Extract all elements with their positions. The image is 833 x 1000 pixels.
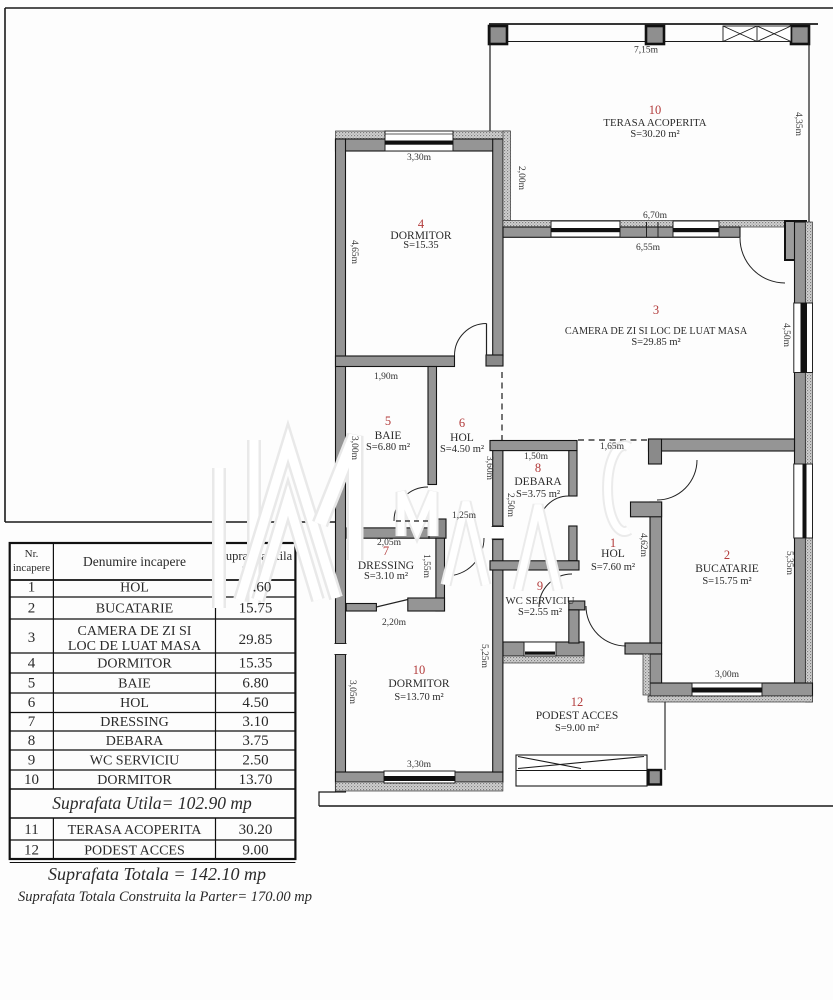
svg-text:Suprafata Totala Construita la: Suprafata Totala Construita la Parter= 1…	[18, 889, 312, 905]
svg-text:PODEST ACCES: PODEST ACCES	[536, 710, 619, 722]
svg-text:11: 11	[24, 822, 38, 838]
svg-text:5: 5	[28, 676, 36, 692]
svg-text:3: 3	[653, 303, 659, 317]
svg-text:S=9.00 m²: S=9.00 m²	[555, 723, 599, 734]
svg-text:incapere: incapere	[13, 562, 50, 574]
svg-text:S=2.55 m²: S=2.55 m²	[518, 607, 562, 618]
svg-text:S=3.75 m²: S=3.75 m²	[516, 489, 560, 500]
svg-text:Denumire incapere: Denumire incapere	[83, 554, 186, 569]
svg-text:10: 10	[413, 663, 426, 677]
svg-text:4: 4	[418, 217, 425, 231]
svg-text:1,90m: 1,90m	[374, 372, 399, 382]
svg-text:4,62m: 4,62m	[638, 533, 648, 558]
svg-text:1,65m: 1,65m	[600, 442, 625, 452]
svg-text:10: 10	[24, 772, 39, 788]
svg-text:BUCATARIE: BUCATARIE	[96, 602, 173, 617]
svg-text:BAIE: BAIE	[118, 677, 151, 692]
svg-text:S=7.60 m²: S=7.60 m²	[591, 562, 635, 573]
svg-text:.60: .60	[253, 580, 272, 596]
svg-text:7,15m: 7,15m	[634, 46, 659, 56]
svg-text:9.00: 9.00	[242, 843, 268, 859]
svg-text:2: 2	[28, 601, 36, 617]
svg-text:3,30m: 3,30m	[407, 760, 432, 770]
svg-text:7: 7	[28, 714, 36, 730]
svg-text:2,00m: 2,00m	[516, 166, 526, 191]
svg-text:S=6.80 m²: S=6.80 m²	[366, 442, 410, 453]
svg-text:S=3.10 m²: S=3.10 m²	[364, 571, 408, 582]
svg-text:S=30.20 m²: S=30.20 m²	[630, 129, 679, 140]
svg-text:WC SERVICIU: WC SERVICIU	[505, 595, 574, 607]
svg-text:6.80: 6.80	[242, 676, 268, 692]
svg-text:S=29.85 m²: S=29.85 m²	[631, 337, 680, 348]
svg-text:TERASA ACOPERITA: TERASA ACOPERITA	[603, 117, 706, 129]
svg-text:PODEST ACCES: PODEST ACCES	[84, 844, 185, 859]
svg-text:3,00m: 3,00m	[349, 436, 359, 461]
svg-text:5,35m: 5,35m	[784, 551, 794, 576]
svg-text:HOL: HOL	[601, 548, 625, 560]
svg-text:6,70m: 6,70m	[643, 211, 668, 221]
svg-text:6: 6	[459, 416, 465, 430]
svg-text:DORMITOR: DORMITOR	[97, 773, 172, 788]
svg-text:1,50m: 1,50m	[524, 452, 549, 462]
svg-text:4,35m: 4,35m	[793, 112, 803, 137]
svg-text:3: 3	[28, 630, 36, 646]
svg-text:5,25m: 5,25m	[479, 644, 489, 669]
svg-text:CAMERA DE ZI SI LOC DE LUAT MA: CAMERA DE ZI SI LOC DE LUAT MASA	[565, 326, 748, 337]
svg-text:DEBARA: DEBARA	[514, 476, 562, 488]
svg-text:BAIE: BAIE	[375, 430, 402, 442]
svg-text:8: 8	[535, 461, 541, 475]
svg-text:S=4.50 m²: S=4.50 m²	[440, 444, 484, 455]
svg-text:2,20m: 2,20m	[382, 618, 407, 628]
svg-text:S=15.35: S=15.35	[403, 240, 438, 251]
svg-text:2: 2	[724, 548, 730, 562]
svg-text:CAMERA DE ZI SI: CAMERA DE ZI SI	[78, 624, 192, 639]
svg-text:3.10: 3.10	[242, 714, 268, 730]
svg-text:13.70: 13.70	[239, 772, 273, 788]
svg-text:S=13.70 m²: S=13.70 m²	[394, 692, 443, 703]
svg-text:9: 9	[537, 579, 543, 593]
svg-text:2,50m: 2,50m	[505, 493, 515, 518]
svg-text:Nr.: Nr.	[25, 548, 39, 560]
svg-text:Suprafata Totala = 142.10 mp: Suprafata Totala = 142.10 mp	[48, 864, 266, 884]
svg-text:1,25m: 1,25m	[452, 511, 477, 521]
svg-text:10: 10	[649, 103, 662, 117]
svg-text:4,50m: 4,50m	[781, 323, 791, 348]
svg-text:2.50: 2.50	[242, 753, 268, 769]
svg-text:3.75: 3.75	[242, 733, 268, 749]
svg-text:9: 9	[28, 753, 36, 769]
svg-text:1,55m: 1,55m	[421, 554, 431, 579]
svg-text:HOL: HOL	[450, 432, 474, 444]
svg-text:S=15.75 m²: S=15.75 m²	[702, 576, 751, 587]
svg-text:HOL: HOL	[120, 696, 149, 711]
svg-text:6: 6	[28, 695, 36, 711]
svg-text:DORMITOR: DORMITOR	[388, 678, 449, 690]
svg-text:29.85: 29.85	[239, 632, 273, 648]
svg-text:4: 4	[28, 656, 36, 672]
svg-text:1: 1	[28, 580, 36, 596]
svg-text:6,55m: 6,55m	[636, 243, 661, 253]
svg-text:DORMITOR: DORMITOR	[97, 657, 172, 672]
svg-text:4.50: 4.50	[242, 695, 268, 711]
svg-text:8: 8	[28, 733, 36, 749]
svg-text:3,60m: 3,60m	[484, 456, 494, 481]
svg-text:12: 12	[24, 843, 39, 859]
svg-text:WC SERVICIU: WC SERVICIU	[90, 754, 180, 769]
svg-text:15.35: 15.35	[239, 656, 273, 672]
svg-text:BUCATARIE: BUCATARIE	[695, 563, 759, 575]
svg-text:15.75: 15.75	[239, 601, 273, 617]
svg-text:3,05m: 3,05m	[347, 680, 357, 705]
svg-text:3,30m: 3,30m	[407, 153, 432, 163]
svg-text:4,65m: 4,65m	[349, 240, 359, 265]
svg-text:LOC DE LUAT MASA: LOC DE LUAT MASA	[68, 639, 202, 654]
svg-text:12: 12	[571, 695, 584, 709]
svg-text:30.20: 30.20	[239, 822, 273, 838]
svg-text:2,05m: 2,05m	[377, 538, 402, 548]
svg-text:DEBARA: DEBARA	[106, 734, 164, 749]
svg-text:TERASA ACOPERITA: TERASA ACOPERITA	[68, 823, 203, 838]
svg-text:DRESSING: DRESSING	[100, 715, 168, 730]
svg-text:3,00m: 3,00m	[715, 670, 740, 680]
svg-text:Suprafata Utila= 102.90 mp: Suprafata Utila= 102.90 mp	[52, 793, 252, 813]
svg-text:5: 5	[385, 414, 391, 428]
svg-text:HOL: HOL	[120, 581, 149, 596]
